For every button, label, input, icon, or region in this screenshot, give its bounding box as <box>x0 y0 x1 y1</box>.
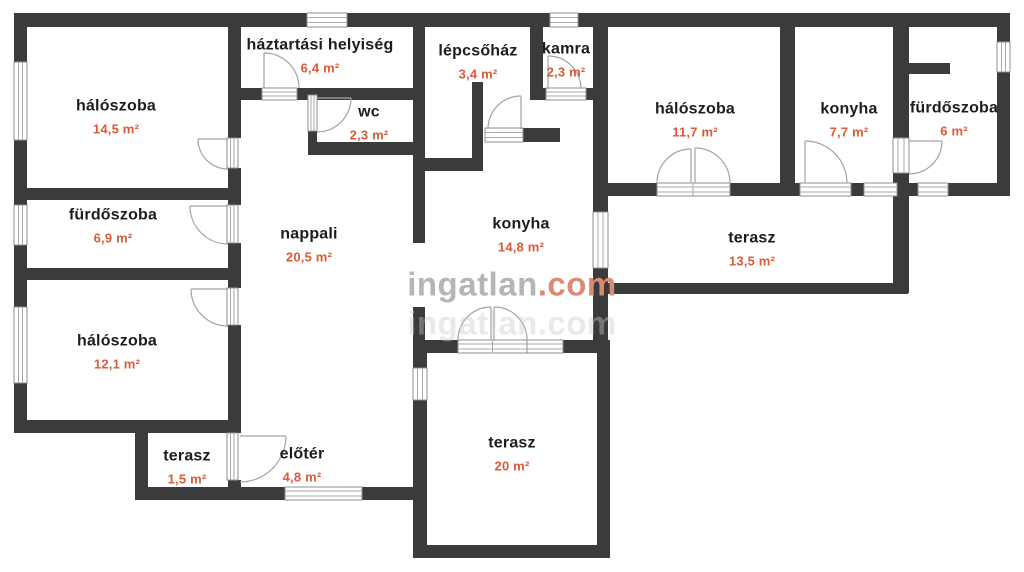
room-name: hálószoba <box>77 334 157 350</box>
room-label-haztartasi: háztartási helyiség 6,4 m² <box>247 38 394 75</box>
room-name: fürdőszoba <box>910 101 998 117</box>
room-name: lépcsőház <box>438 44 517 60</box>
room-area: 11,7 m² <box>655 126 735 139</box>
room-name: terasz <box>163 449 210 465</box>
window <box>413 368 427 400</box>
room-area: 1,5 m² <box>163 473 210 486</box>
window <box>864 183 897 196</box>
door-opening <box>893 138 909 173</box>
room-area: 2,3 m² <box>542 66 590 79</box>
room-name: nappali <box>280 227 337 243</box>
door-opening <box>657 183 730 196</box>
room-name: előtér <box>280 447 325 463</box>
door-swing <box>317 98 351 132</box>
room-name: konyha <box>820 102 877 118</box>
window <box>550 13 578 27</box>
watermark-suffix: .com <box>538 266 617 303</box>
room-label-nappali: nappali 20,5 m² <box>280 227 337 264</box>
room-area: 13,5 m² <box>728 255 775 268</box>
window <box>918 183 948 196</box>
room-area: 7,7 m² <box>820 126 877 139</box>
room-area: 6 m² <box>910 125 998 138</box>
room-name: terasz <box>488 436 535 452</box>
watermark: ingatlan.com <box>407 268 617 301</box>
room-area: 12,1 m² <box>77 358 157 371</box>
room-area: 2,3 m² <box>350 129 389 142</box>
window <box>307 13 347 27</box>
room-area: 4,8 m² <box>280 471 325 484</box>
room-label-wc: wc 2,3 m² <box>350 105 389 142</box>
room-name: háztartási helyiség <box>247 38 394 54</box>
room-label-kamra: kamra 2,3 m² <box>542 42 590 79</box>
door-opening <box>227 288 238 325</box>
room-label-konyha-1: konyha 14,8 m² <box>492 217 549 254</box>
door-swing <box>488 96 521 129</box>
room-area: 20,5 m² <box>280 251 337 264</box>
door-opening <box>546 88 586 100</box>
room-name: hálószoba <box>76 99 156 115</box>
door-opening <box>485 128 523 142</box>
room-name: konyha <box>492 217 549 233</box>
window <box>285 487 362 500</box>
room-name: kamra <box>542 42 590 58</box>
room-area: 6,9 m² <box>69 232 157 245</box>
window <box>14 205 27 245</box>
window <box>997 42 1010 72</box>
watermark-prefix: ingatlan <box>407 266 538 303</box>
room-label-eloter: előtér 4,8 m² <box>280 447 325 484</box>
room-label-haloszoba-1: hálószoba 14,5 m² <box>76 99 156 136</box>
door-swing <box>805 141 847 183</box>
room-label-konyha-2: konyha 7,7 m² <box>820 102 877 139</box>
room-area: 20 m² <box>488 460 535 473</box>
room-label-haloszoba-2: hálószoba 12,1 m² <box>77 334 157 371</box>
window <box>593 212 608 268</box>
room-name: wc <box>350 105 389 121</box>
room-label-terasz-2: terasz 20 m² <box>488 436 535 473</box>
room-name: fürdőszoba <box>69 208 157 224</box>
floor-plan: hálószoba 14,5 m² fürdőszoba 6,9 m² háló… <box>0 0 1024 572</box>
window <box>14 307 27 383</box>
room-area: 3,4 m² <box>438 68 517 81</box>
room-label-terasz-1: terasz 1,5 m² <box>163 449 210 486</box>
door-swing <box>657 148 730 183</box>
door-opening <box>227 138 238 168</box>
room-area: 14,5 m² <box>76 123 156 136</box>
door-opening <box>800 183 851 196</box>
door-opening <box>458 340 527 353</box>
room-label-lepcsohaz: lépcsőház 3,4 m² <box>438 44 517 81</box>
room-name: terasz <box>728 231 775 247</box>
door-opening <box>227 433 238 480</box>
door-opening <box>227 205 238 243</box>
door-swing <box>909 141 942 174</box>
door-swing <box>190 206 228 244</box>
room-label-terasz-3: terasz 13,5 m² <box>728 231 775 268</box>
door-opening <box>262 88 297 100</box>
room-label-haloszoba-3: hálószoba 11,7 m² <box>655 102 735 139</box>
door-swing <box>198 139 228 169</box>
watermark-faint: ingatlan.com <box>407 307 617 340</box>
room-area: 14,8 m² <box>492 241 549 254</box>
room-name: hálószoba <box>655 102 735 118</box>
door-swing <box>191 289 228 326</box>
window <box>14 62 27 140</box>
room-label-furdoszoba-2: fürdőszoba 6 m² <box>910 101 998 138</box>
window <box>527 340 563 353</box>
room-area: 6,4 m² <box>247 62 394 75</box>
room-label-furdoszoba-1: fürdőszoba 6,9 m² <box>69 208 157 245</box>
door-opening <box>308 95 317 131</box>
